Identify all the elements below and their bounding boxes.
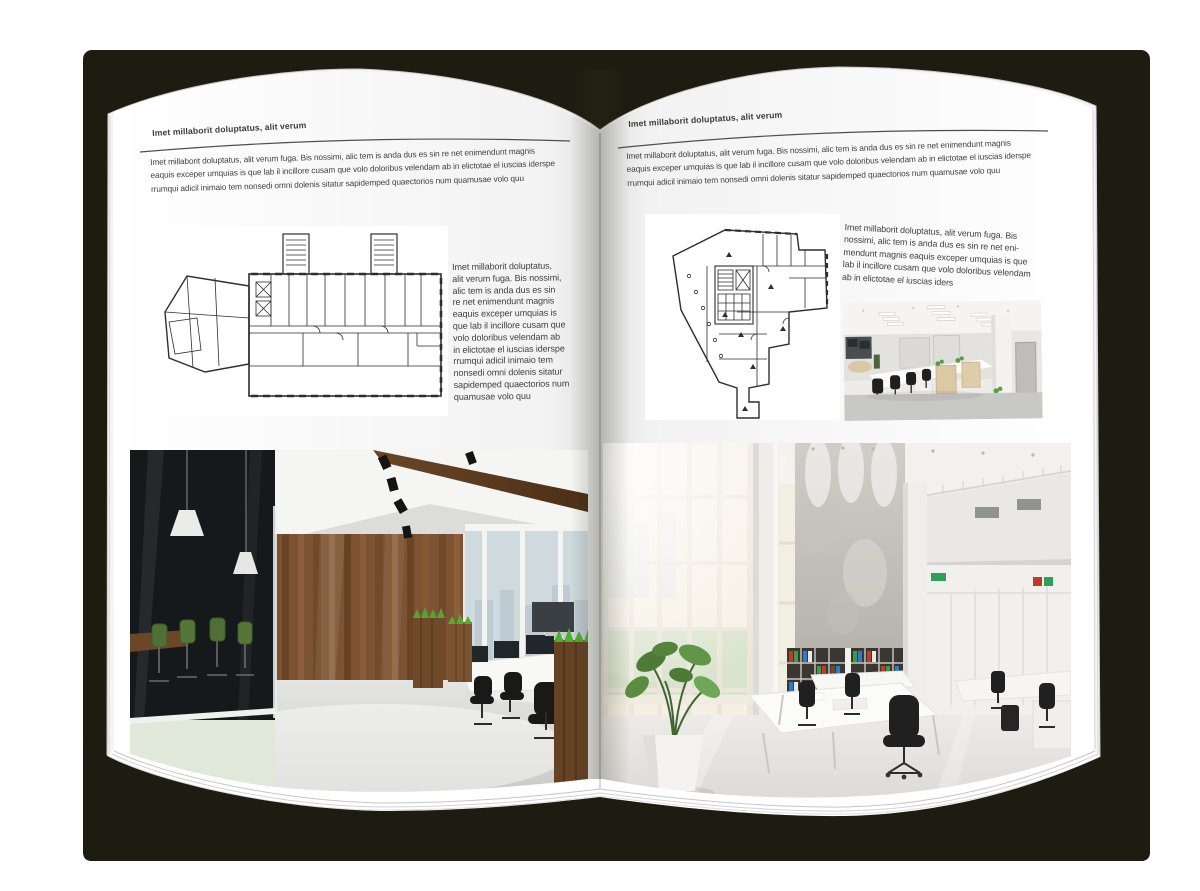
magazine-mockup: Imet millaborit doluptatus, alit verum I… — [0, 0, 1200, 891]
book-pages — [0, 0, 1200, 891]
